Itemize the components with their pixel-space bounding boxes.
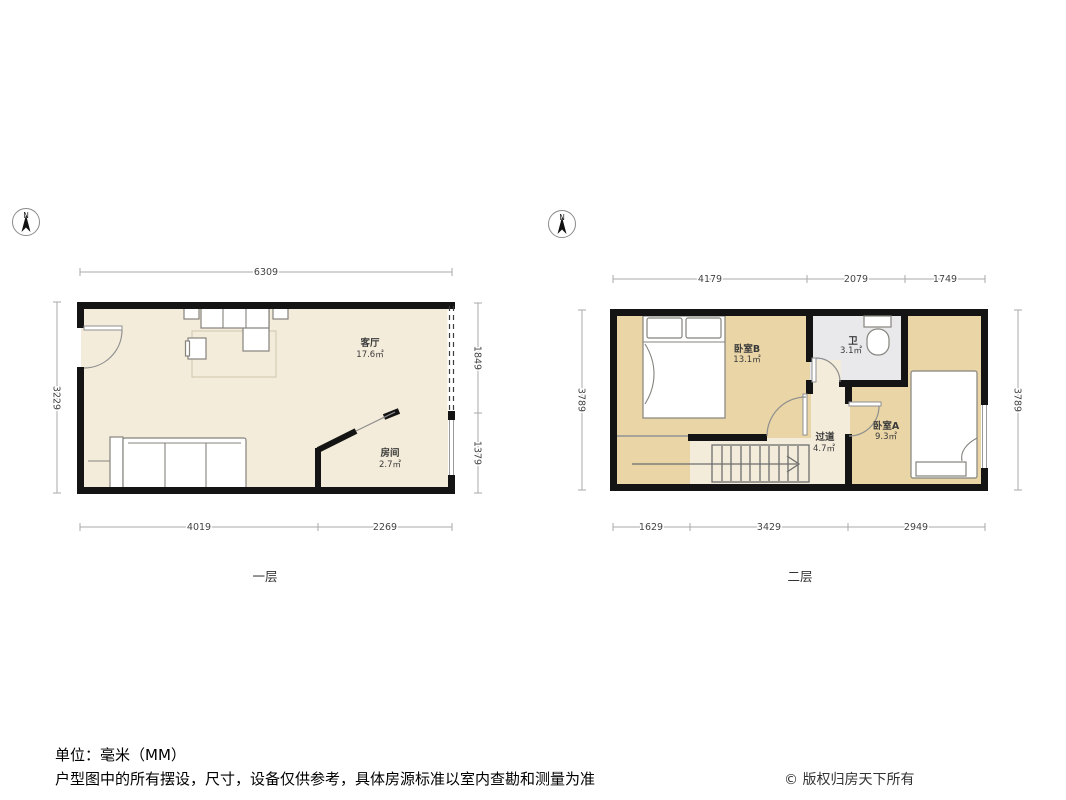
floorplan-canvas: N N <box>0 0 1066 800</box>
dim-label: 3229 <box>51 386 62 410</box>
window <box>981 405 988 468</box>
double-bed <box>643 316 725 418</box>
dim-label: 3789 <box>576 388 587 412</box>
unit-note: 单位：毫米（MM） <box>55 744 186 765</box>
dim-label: 4179 <box>698 274 722 285</box>
dim-label: 6309 <box>254 267 278 278</box>
north-compass-icon: N <box>549 211 576 238</box>
dim-label: 1629 <box>639 522 663 533</box>
dim-label: 3789 <box>1012 388 1023 412</box>
floor1-label: 一层 <box>252 569 277 584</box>
bedroom-b-floor <box>615 436 690 488</box>
floorplan-page: N N <box>0 0 1066 800</box>
dim-label: 4019 <box>187 522 211 533</box>
dim-label: 3429 <box>757 522 781 533</box>
armchair <box>186 338 207 359</box>
room-name: 客厅 <box>359 337 380 349</box>
dim-label: 2079 <box>844 274 868 285</box>
bed <box>88 437 246 490</box>
copyright-note: © 版权归房天下所有 <box>784 769 914 789</box>
room-area: 17.6㎡ <box>356 350 384 360</box>
room-name: 过道 <box>815 431 835 443</box>
room-name: 卧室B <box>734 343 760 355</box>
room-area: 9.3㎡ <box>875 432 898 442</box>
dim-label: 1849 <box>472 346 483 370</box>
window <box>448 420 455 475</box>
disclaimer-note: 户型图中的所有摆设，尺寸，设备仅供参考，具体房源标准以室内查勘和测量为准 <box>55 768 595 789</box>
toilet <box>864 316 891 355</box>
dim-label: 2949 <box>904 522 928 533</box>
room-area: 2.7㎡ <box>379 460 402 470</box>
dim-label: 2269 <box>373 522 397 533</box>
room-area: 3.1㎡ <box>840 346 863 356</box>
room-area: 13.1㎡ <box>733 355 761 365</box>
north-compass-icon: N <box>13 209 40 236</box>
dashed-opening <box>448 306 456 412</box>
single-bed <box>911 371 977 478</box>
room-name: 卧室A <box>873 420 900 432</box>
room-name: 房间 <box>380 447 399 459</box>
room-area: 4.7㎡ <box>813 444 836 454</box>
floor2-label: 二层 <box>787 569 812 584</box>
dim-label: 1379 <box>472 441 483 465</box>
dim-label: 1749 <box>933 274 957 285</box>
floor2-plan <box>610 309 988 491</box>
